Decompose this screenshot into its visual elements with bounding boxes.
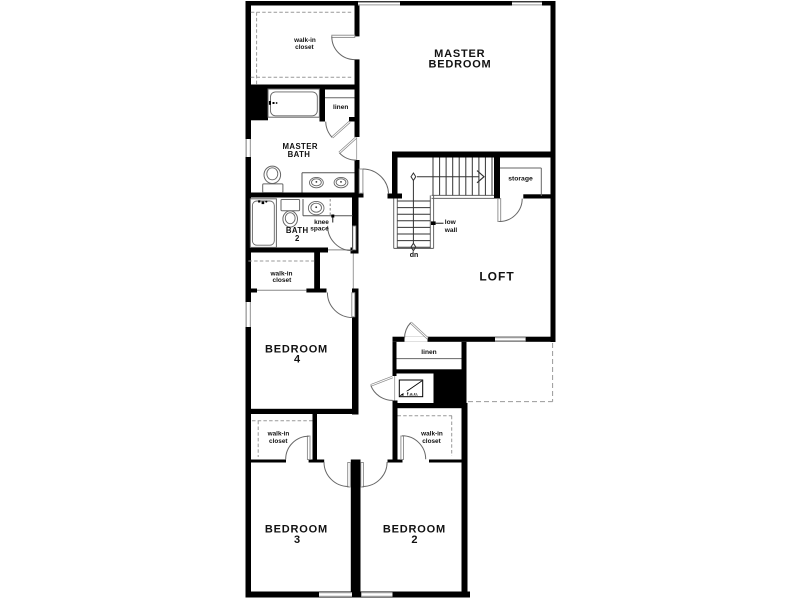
svg-text:walk-in: walk-in [420, 430, 443, 437]
svg-text:BATH: BATH [288, 150, 311, 159]
svg-text:low: low [445, 219, 457, 226]
svg-text:2: 2 [411, 534, 417, 546]
svg-text:3: 3 [294, 534, 300, 546]
svg-text:space: space [310, 226, 329, 233]
svg-text:closet: closet [269, 438, 288, 445]
svg-text:f.a.u.: f.a.u. [407, 392, 418, 398]
svg-text:closet: closet [273, 277, 293, 284]
svg-text:storage: storage [508, 176, 533, 183]
svg-text:walk-in: walk-in [267, 430, 290, 437]
svg-text:4: 4 [294, 353, 301, 365]
svg-text:dn: dn [410, 252, 419, 259]
svg-text:2: 2 [295, 234, 300, 243]
svg-text:closet: closet [422, 438, 441, 445]
svg-text:LOFT: LOFT [479, 270, 514, 284]
svg-text:BEDROOM: BEDROOM [428, 58, 491, 70]
svg-text:linen: linen [421, 349, 436, 356]
svg-text:walk-in: walk-in [293, 37, 316, 44]
svg-text:closet: closet [295, 44, 314, 51]
svg-text:wall: wall [444, 227, 458, 234]
svg-text:linen: linen [333, 104, 348, 111]
